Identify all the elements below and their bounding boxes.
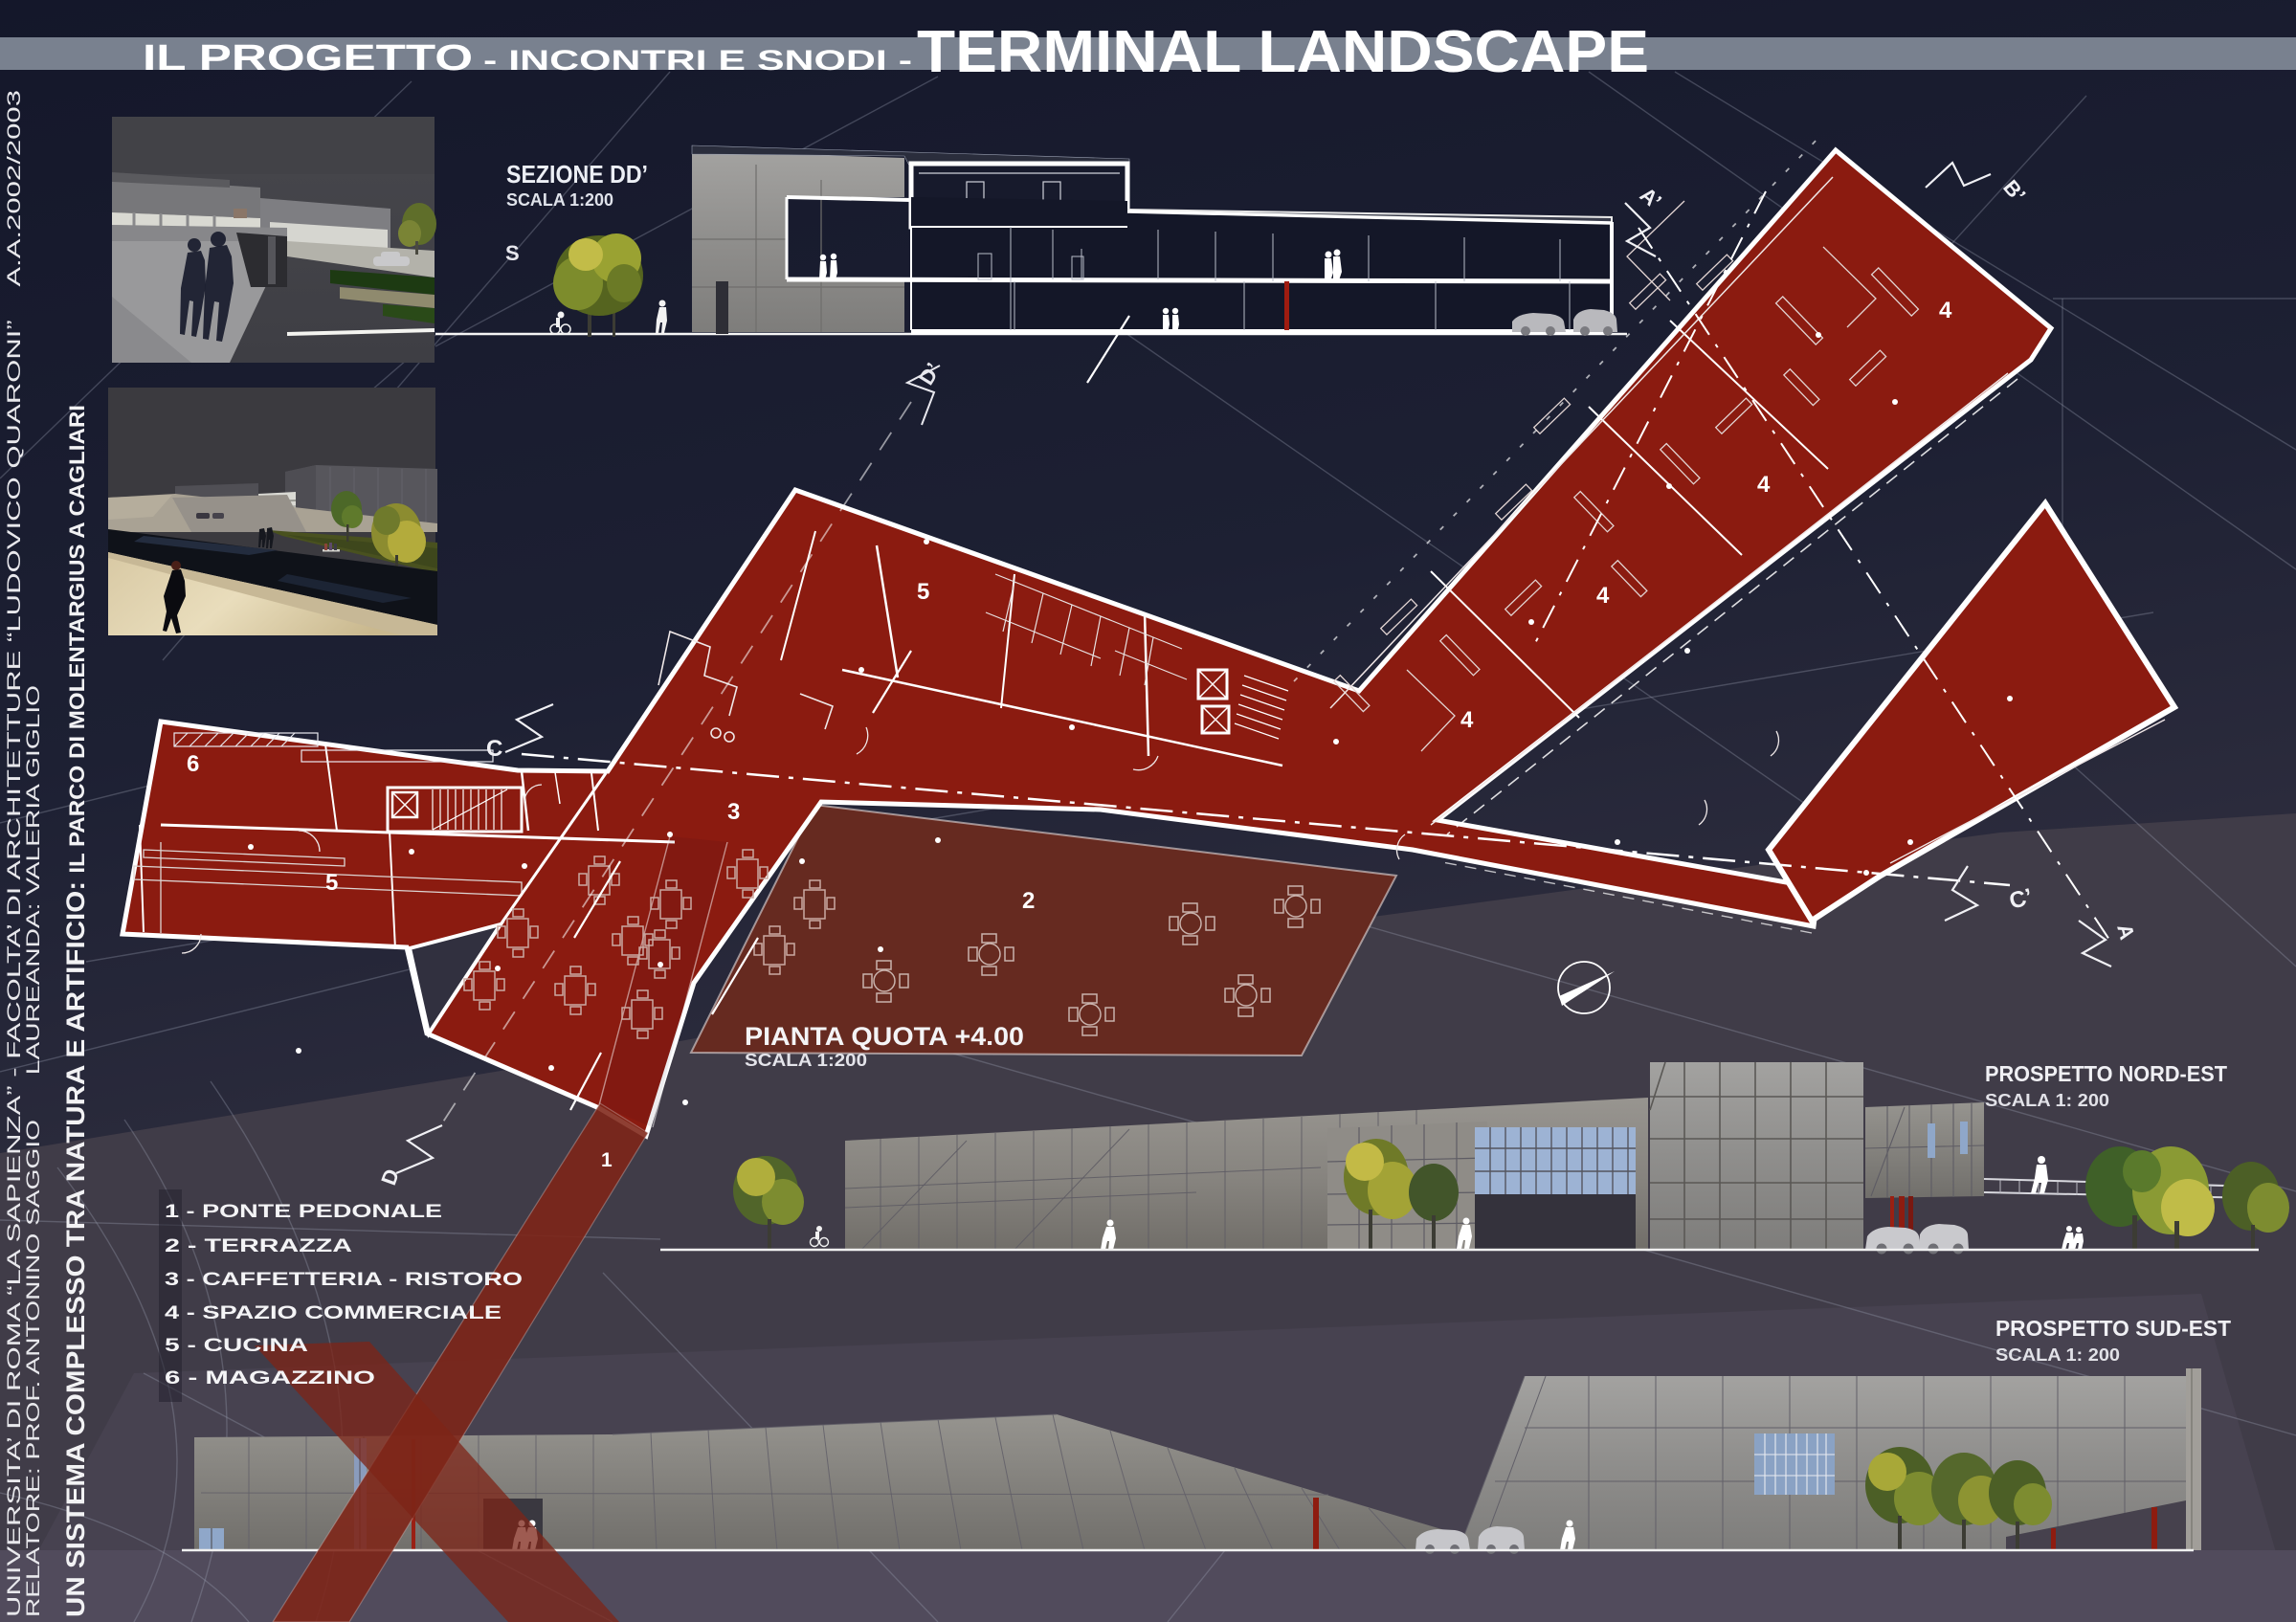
svg-text:SCALA 1: 200: SCALA 1: 200 (1985, 1091, 2109, 1110)
svg-text:6 - MAGAZZINO: 6 - MAGAZZINO (165, 1368, 375, 1389)
svg-text:4: 4 (1460, 707, 1474, 733)
svg-text:4: 4 (1757, 472, 1771, 498)
svg-text:1: 1 (601, 1149, 613, 1171)
svg-text:5: 5 (325, 870, 339, 896)
svg-text:4 - SPAZIO COMMERCIALE: 4 - SPAZIO COMMERCIALE (165, 1303, 502, 1323)
svg-text:6: 6 (187, 751, 200, 777)
svg-text:RELATORE: PROF. ANTONINO SAGGI: RELATORE: PROF. ANTONINO SAGGIO LAUREAND… (24, 685, 44, 1617)
svg-text:UNIVERSITA’ DI ROMA “LA SAPIEN: UNIVERSITA’ DI ROMA “LA SAPIENZA” - FACO… (5, 90, 25, 1617)
svg-text:- INCONTRI E SNODI -: - INCONTRI E SNODI - (483, 45, 912, 77)
svg-text:5 - CUCINA: 5 - CUCINA (165, 1336, 308, 1356)
svg-text:4: 4 (1596, 583, 1610, 609)
svg-text:2 - TERRAZZA: 2 - TERRAZZA (165, 1236, 352, 1256)
svg-text:PROSPETTO SUD-EST: PROSPETTO SUD-EST (1995, 1316, 2231, 1341)
svg-text:TERMINAL LANDSCAPE: TERMINAL LANDSCAPE (917, 19, 1649, 85)
svg-text:PIANTA QUOTA +4.00: PIANTA QUOTA +4.00 (745, 1022, 1024, 1051)
svg-text:4: 4 (1939, 298, 1952, 323)
svg-text:PROSPETTO NORD-EST: PROSPETTO NORD-EST (1985, 1061, 2227, 1086)
svg-text:S: S (505, 241, 520, 265)
svg-text:1 - PONTE PEDONALE: 1 - PONTE PEDONALE (165, 1202, 442, 1222)
svg-text:C: C (486, 736, 502, 762)
svg-text:IL PROGETTO: IL PROGETTO (143, 38, 473, 78)
svg-text:2: 2 (1022, 888, 1036, 914)
svg-text:5: 5 (917, 579, 930, 605)
svg-text:SCALA 1:200: SCALA 1:200 (745, 1051, 867, 1070)
svg-text:UN SISTEMA COMPLESSO TRA NATUR: UN SISTEMA COMPLESSO TRA NATURA E ARTIFI… (61, 405, 90, 1617)
svg-text:SEZIONE DD’: SEZIONE DD’ (506, 160, 648, 189)
svg-text:SCALA 1: 200: SCALA 1: 200 (1995, 1345, 2120, 1365)
svg-text:SCALA 1:200: SCALA 1:200 (506, 190, 613, 210)
svg-text:3: 3 (727, 799, 741, 825)
svg-text:3 - CAFFETTERIA - RISTORO: 3 - CAFFETTERIA - RISTORO (165, 1270, 523, 1290)
